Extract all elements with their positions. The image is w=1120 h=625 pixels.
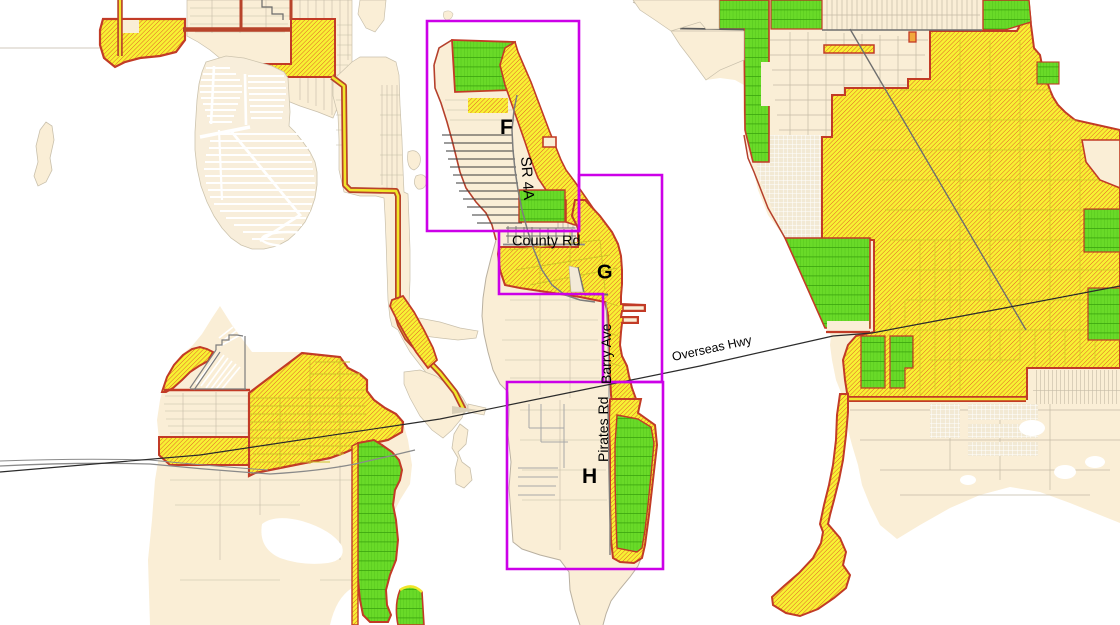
svg-text:SR 4A: SR 4A <box>517 156 537 200</box>
svg-text:County Rd: County Rd <box>512 234 581 250</box>
svg-text:G: G <box>597 262 613 284</box>
svg-text:Barry Ave: Barry Ave <box>598 323 614 384</box>
svg-text:Pirates Rd: Pirates Rd <box>595 397 611 462</box>
svg-text:H: H <box>582 465 597 488</box>
svg-text:F: F <box>500 116 513 139</box>
